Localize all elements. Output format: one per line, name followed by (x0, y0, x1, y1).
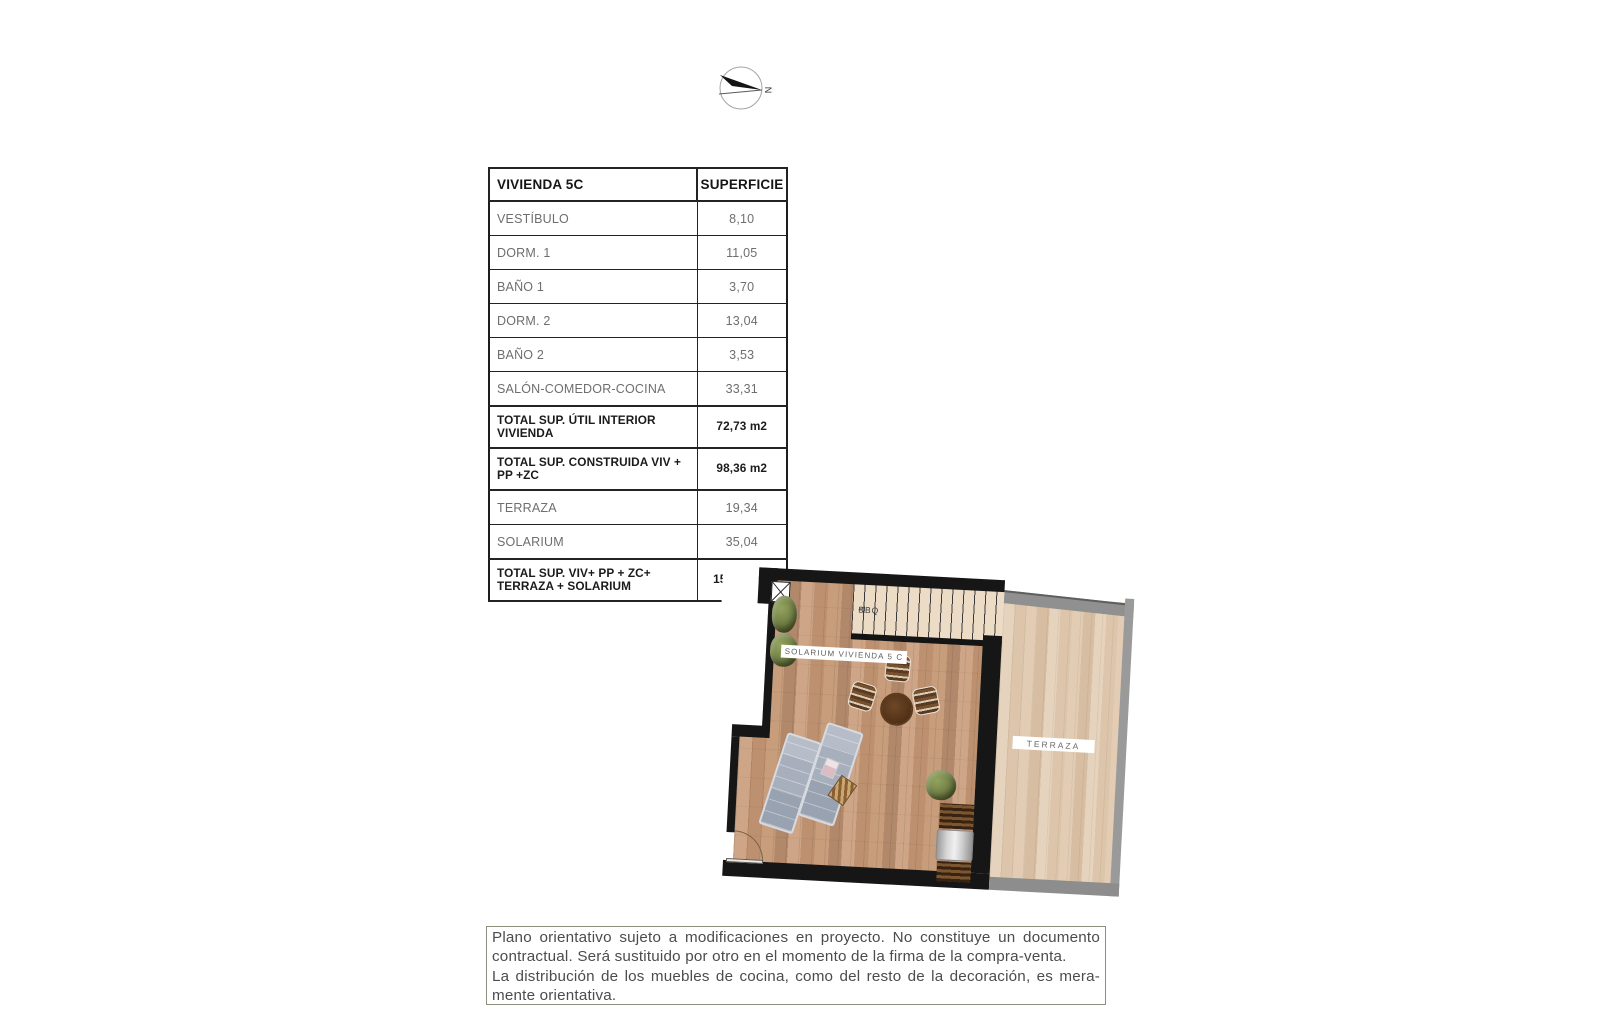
row-label: TOTAL SUP. CONSTRUIDA VIV + PP +ZC (489, 448, 697, 490)
disclaimer-box: Plano orientativo sujeto a modificacione… (486, 926, 1106, 1005)
table-row-total: TOTAL SUP. ÚTIL INTERIOR VIVIENDA 72,73 … (489, 406, 787, 448)
row-label: VESTÍBULO (489, 201, 697, 236)
table-header-dwelling: VIVIENDA 5C (489, 168, 697, 201)
table-row: BAÑO 1 3,70 (489, 270, 787, 304)
row-label: TOTAL SUP. ÚTIL INTERIOR VIVIENDA (489, 406, 697, 448)
row-value: 11,05 (697, 236, 787, 270)
row-label: BAÑO 2 (489, 338, 697, 372)
surface-table: VIVIENDA 5C SUPERFICIE VESTÍBULO 8,10 DO… (488, 167, 788, 602)
bbq-label: BBQ (858, 604, 879, 615)
disclaimer-line: contractual. Será sustituido por otro en… (492, 947, 1100, 966)
table-header-surface: SUPERFICIE (697, 168, 787, 201)
table-row: SALÓN-COMEDOR-COCINA 33,31 (489, 372, 787, 407)
row-value: 98,36 m2 (697, 448, 787, 490)
stairs-label: ◁ BBQ (855, 602, 862, 615)
plan-sheet-page: N VIVIENDA 5C SUPERFICIE VESTÍBULO 8,10 … (0, 0, 1600, 1024)
disclaimer-line: mente orientativa. (492, 986, 1100, 1005)
bench-mat (936, 861, 971, 883)
row-value: 13,04 (697, 304, 787, 338)
table-row: DORM. 1 11,05 (489, 236, 787, 270)
north-label: N (763, 87, 772, 94)
bench-cushion (935, 829, 974, 862)
table-row: BAÑO 2 3,53 (489, 338, 787, 372)
disclaimer-line: Plano orientativo sujeto a modificacione… (492, 928, 1100, 947)
row-label: SOLARIUM (489, 525, 697, 560)
row-value: 19,34 (697, 490, 787, 525)
row-label: TERRAZA (489, 490, 697, 525)
row-value: 3,70 (697, 270, 787, 304)
north-compass-icon: N (716, 62, 772, 114)
bench-mat (939, 803, 974, 830)
row-label: TOTAL SUP. VIV+ PP + ZC+ TERRAZA + SOLAR… (489, 559, 697, 601)
bench-with-cushion (936, 803, 974, 883)
row-label: DORM. 1 (489, 236, 697, 270)
row-value: 8,10 (697, 201, 787, 236)
table-row: DORM. 2 13,04 (489, 304, 787, 338)
table-row-total: TOTAL SUP. CONSTRUIDA VIV + PP +ZC 98,36… (489, 448, 787, 490)
row-value: 72,73 m2 (697, 406, 787, 448)
surface-table-header: VIVIENDA 5C SUPERFICIE (489, 168, 787, 201)
table-row: VESTÍBULO 8,10 (489, 201, 787, 236)
stairs: ◁ BBQ (851, 582, 1005, 647)
row-label: DORM. 2 (489, 304, 697, 338)
row-label: SALÓN-COMEDOR-COCINA (489, 372, 697, 407)
floor-plan: ◁ BBQ (707, 565, 1135, 898)
row-value: 35,04 (697, 525, 787, 560)
disclaimer-line: La distribución de los muebles de cocina… (492, 967, 1100, 986)
table-row: TERRAZA 19,34 (489, 490, 787, 525)
row-label: BAÑO 1 (489, 270, 697, 304)
table-row: SOLARIUM 35,04 (489, 525, 787, 560)
row-value: 33,31 (697, 372, 787, 407)
row-value: 3,53 (697, 338, 787, 372)
chair-icon (911, 685, 941, 716)
